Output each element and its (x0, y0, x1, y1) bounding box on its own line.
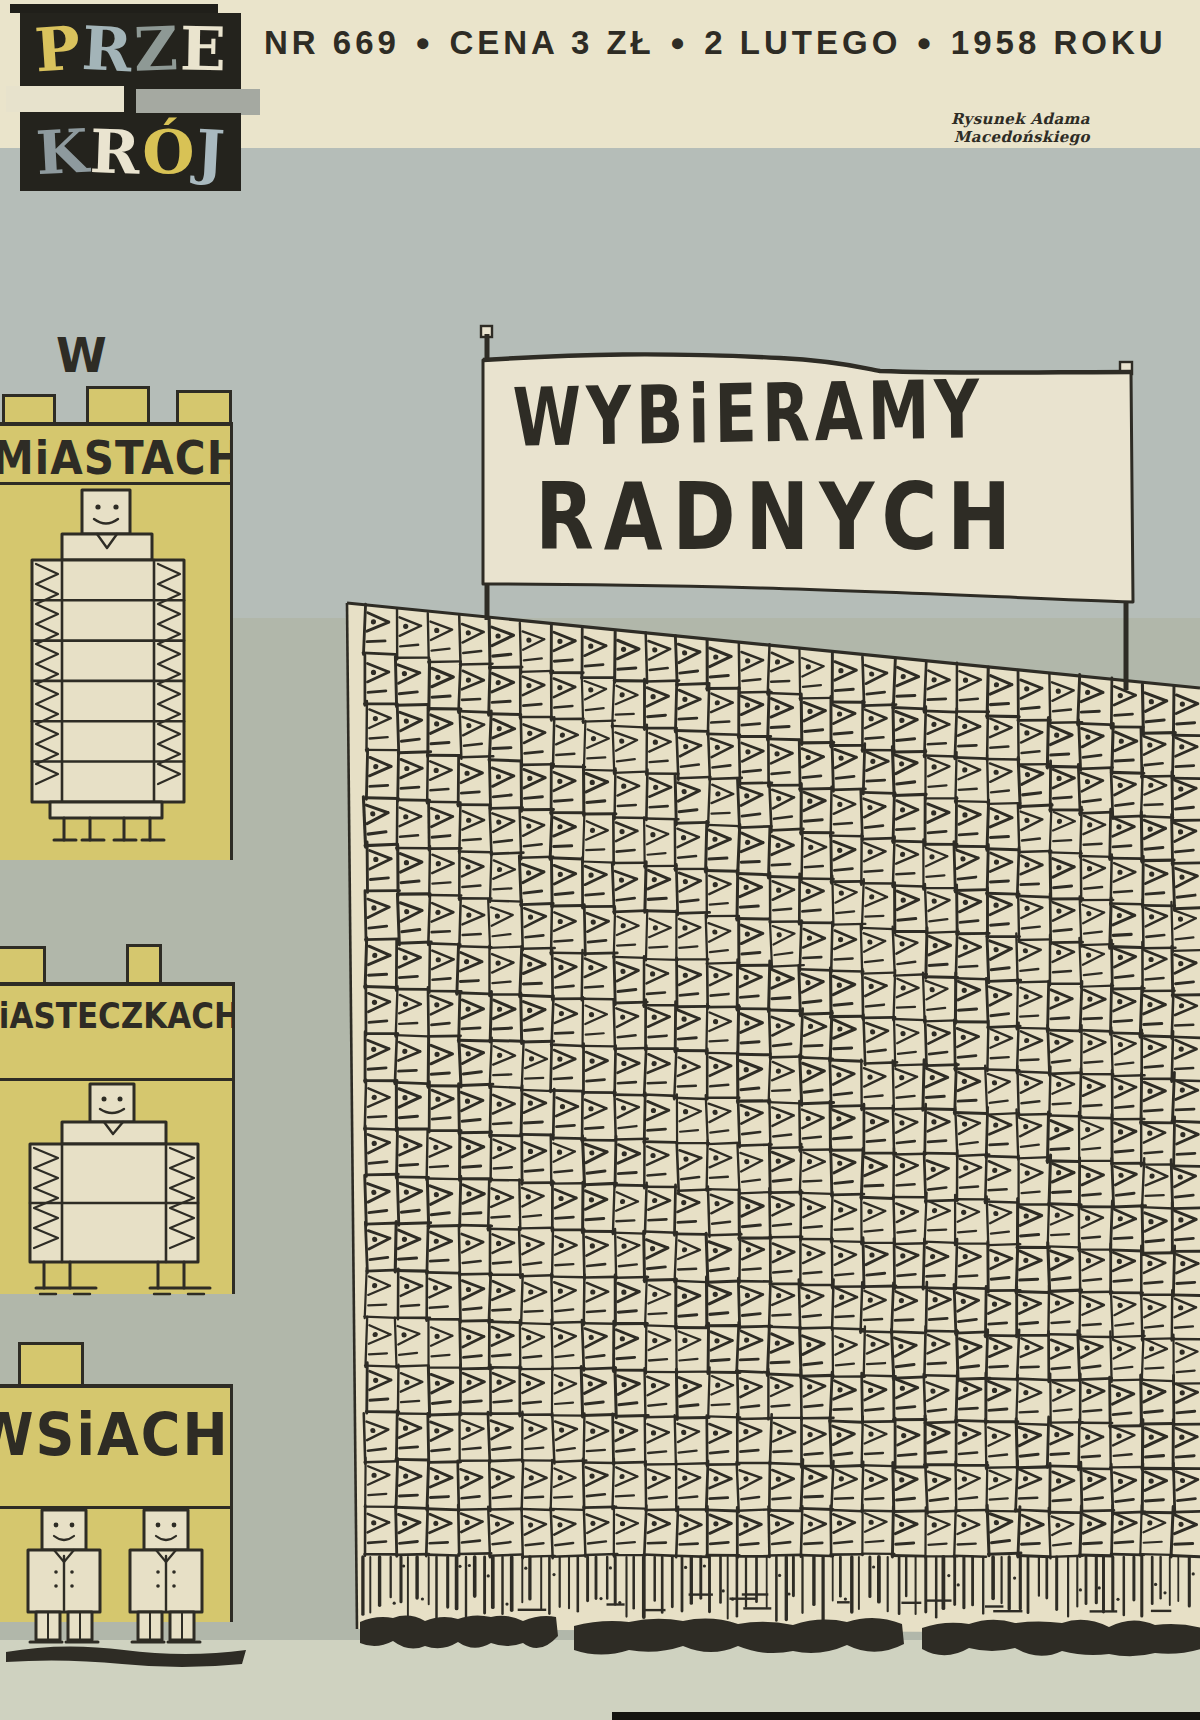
candidate-figure-tower (20, 488, 196, 844)
magazine-cover: NR 669●CENA 3 ZŁ●2 LUTEGO●1958 ROKU Rysu… (0, 0, 1200, 1720)
masthead-word-kroj: KRÓJ (20, 113, 241, 191)
masthead-strip-left (6, 86, 124, 112)
issue-info-line: NR 669●CENA 3 ZŁ●2 LUTEGO●1958 ROKU (264, 24, 1124, 62)
masthead-strip-right (136, 89, 260, 115)
separator-dot: ● (415, 28, 435, 56)
masthead-letter: R (89, 121, 141, 183)
issue-date: 2 LUTEGO (704, 24, 901, 61)
illustration-credit: Rysunek Adama Macedońskiego (850, 110, 1090, 146)
building-towns-label: MiASTECZKACH (0, 996, 235, 1036)
masthead-logo: PRZE KRÓJ (14, 4, 246, 192)
chimney (126, 944, 162, 982)
masthead-word-prze: PRZE (20, 13, 241, 85)
crowd-flag-grid (340, 598, 1200, 1660)
chimney (176, 390, 232, 424)
issue-number: NR 669 (264, 24, 400, 61)
chimney (86, 386, 150, 424)
banner-line2: RADNYCH (488, 462, 1068, 571)
candidate-figure-wide (22, 1082, 212, 1298)
price: CENA 3 ZŁ (449, 24, 654, 61)
building-cities-label: MiASTACH (0, 432, 233, 485)
separator-dot: ● (916, 28, 936, 56)
masthead-letter: K (35, 121, 90, 184)
masthead-top-bar (10, 4, 218, 13)
issue-year: 1958 ROKU (951, 24, 1167, 61)
chimney (18, 1342, 84, 1384)
building-rule (0, 482, 233, 485)
chimney (2, 394, 56, 424)
villager-figures (2, 1506, 250, 1670)
masthead-letter: R (81, 18, 134, 81)
building-cities-prefix: W (56, 327, 107, 384)
masthead-letter: E (180, 19, 227, 80)
chimney (0, 946, 46, 982)
masthead-letter: J (195, 121, 226, 182)
scan-edge-bar (612, 1712, 1200, 1720)
building-villages-label: WSiACH (0, 1400, 230, 1469)
masthead-letter: Ó (142, 122, 194, 182)
masthead-letter: Z (133, 18, 179, 79)
banner-line1: WYBiERAMY (468, 361, 1029, 466)
building-rule (0, 1078, 235, 1081)
masthead-letter: P (33, 17, 82, 80)
separator-dot: ● (670, 28, 690, 56)
